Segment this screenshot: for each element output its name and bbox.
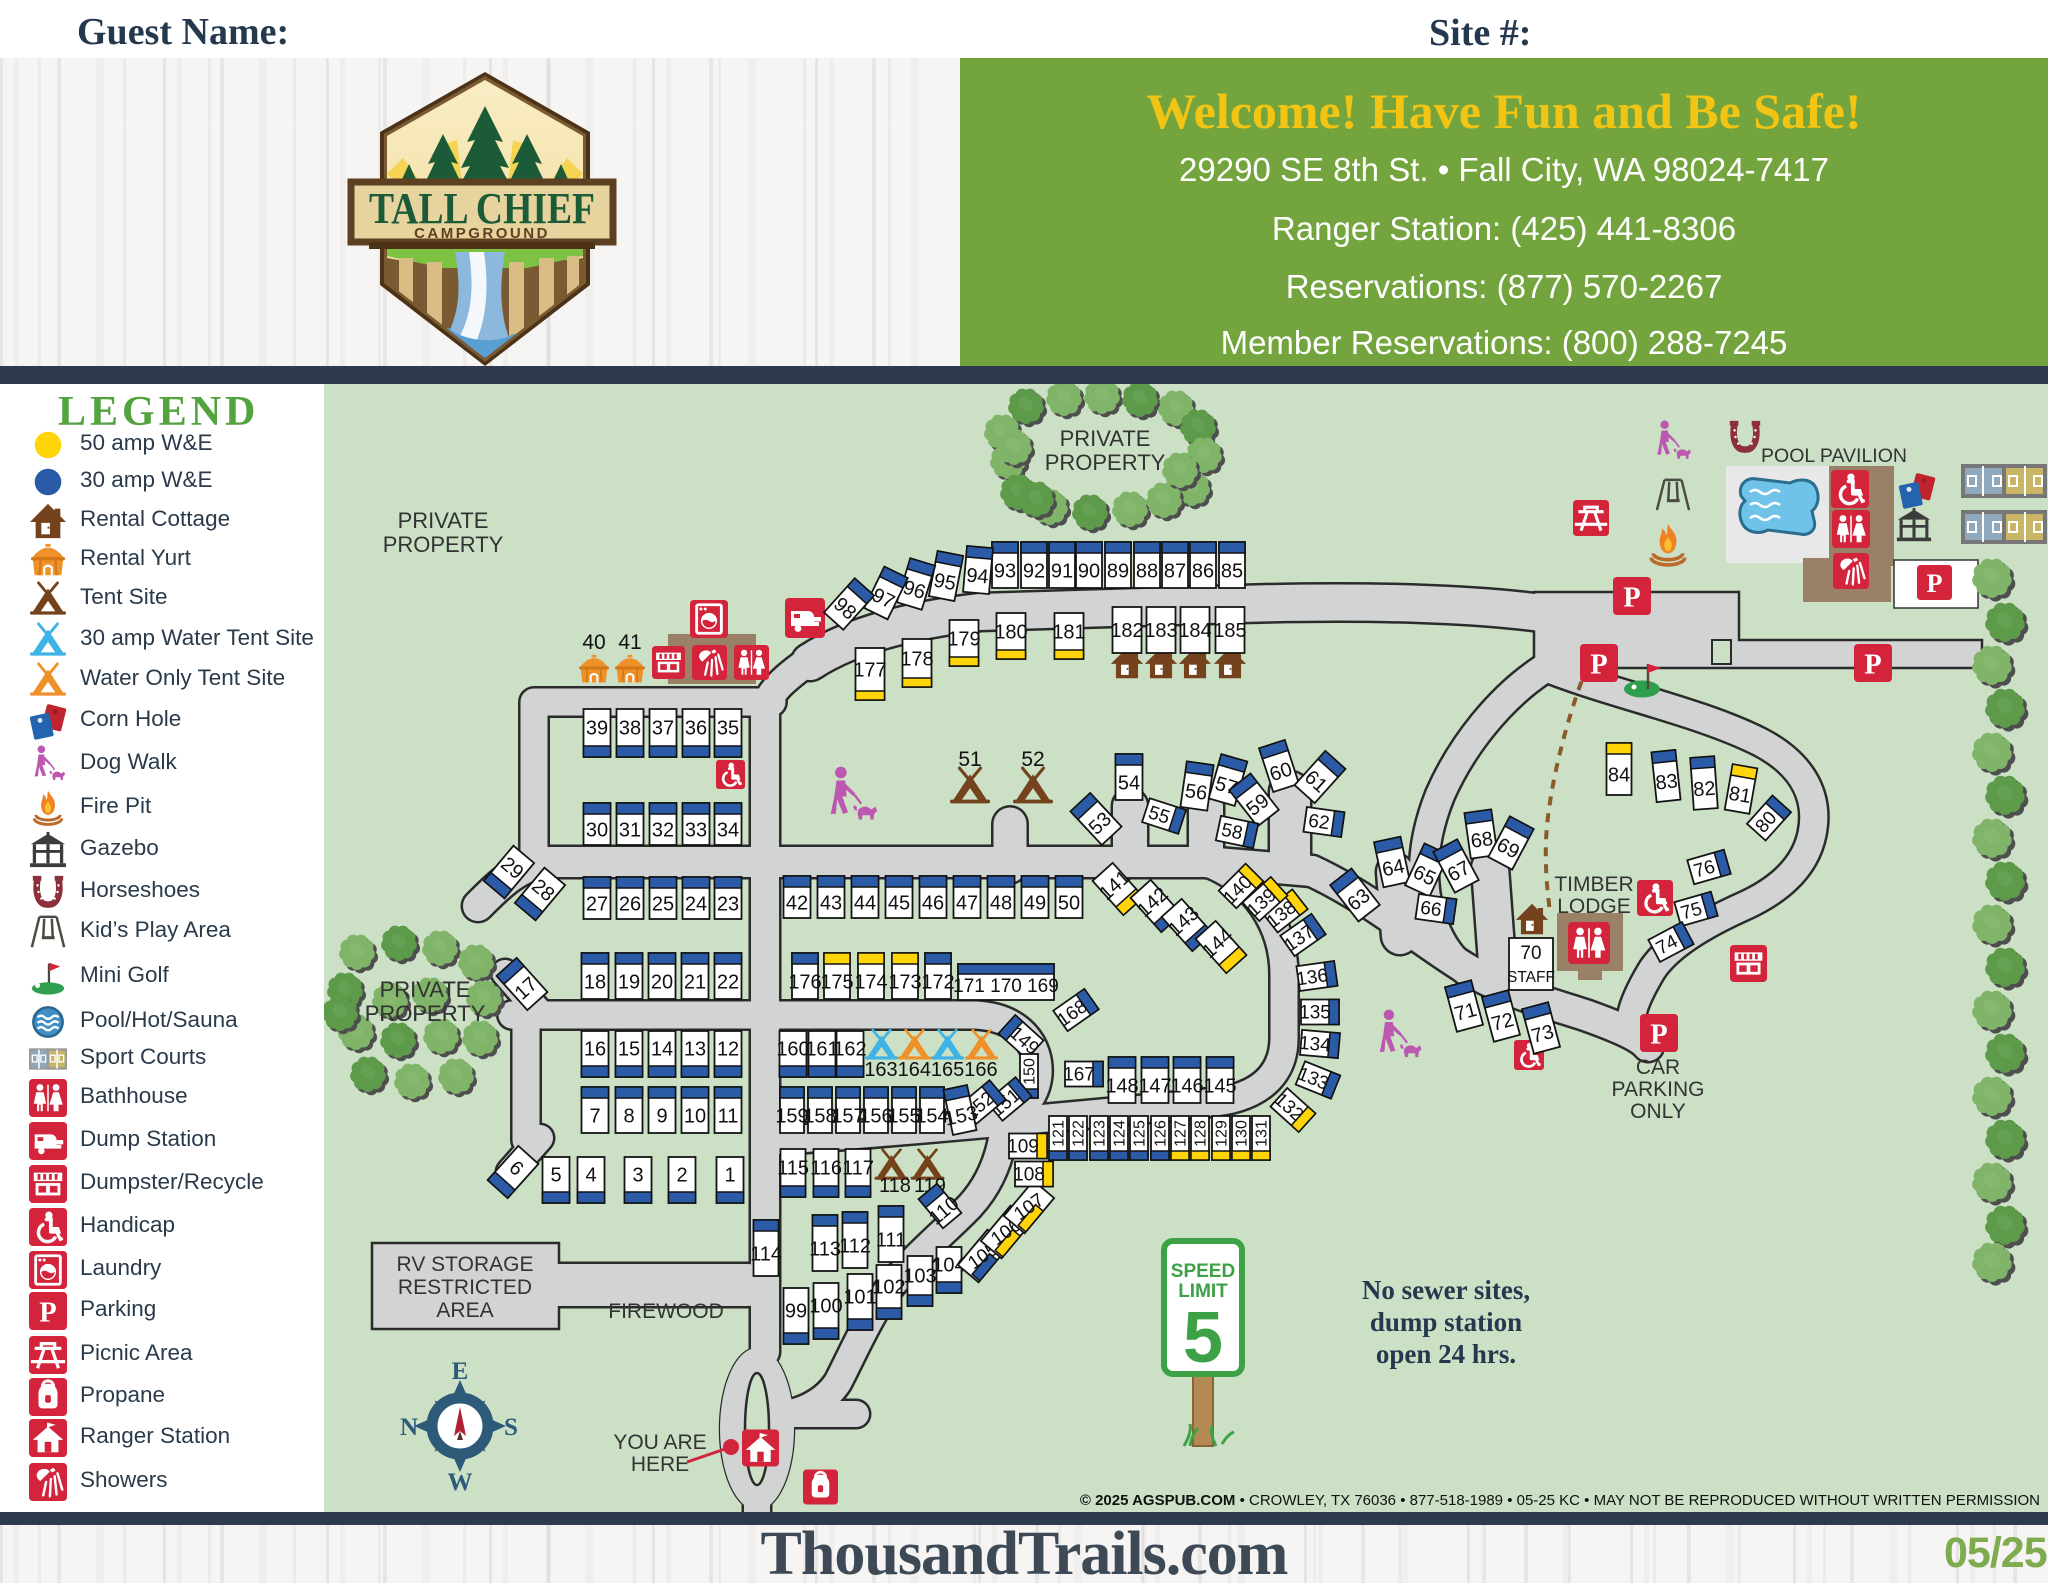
svg-text:171 170 169: 171 170 169 — [953, 976, 1059, 997]
svg-text:127: 127 — [1173, 1120, 1190, 1147]
svg-text:48: 48 — [990, 893, 1012, 915]
svg-text:163: 163 — [864, 1059, 897, 1081]
svg-text:129: 129 — [1214, 1120, 1231, 1147]
svg-text:118: 118 — [879, 1175, 911, 1197]
svg-text:175: 175 — [820, 972, 853, 994]
svg-text:49: 49 — [1024, 893, 1046, 915]
svg-text:© 2025 AGSPUB.COM • CROWLEY, T: © 2025 AGSPUB.COM • CROWLEY, TX 76036 • … — [1080, 1492, 2040, 1509]
svg-text:165: 165 — [931, 1059, 964, 1081]
svg-text:148: 148 — [1105, 1076, 1138, 1098]
svg-text:56: 56 — [1184, 780, 1209, 805]
svg-text:16: 16 — [584, 1039, 606, 1061]
svg-text:38: 38 — [619, 718, 641, 740]
svg-text:174: 174 — [854, 972, 887, 994]
svg-text:122: 122 — [1071, 1120, 1088, 1147]
svg-text:109: 109 — [1007, 1137, 1039, 1158]
svg-text:134: 134 — [1298, 1033, 1332, 1057]
svg-text:19: 19 — [618, 972, 640, 994]
svg-text:HERE: HERE — [631, 1453, 689, 1476]
svg-text:87: 87 — [1164, 561, 1186, 583]
svg-text:30: 30 — [586, 820, 608, 842]
svg-text:18: 18 — [584, 972, 606, 994]
svg-text:117: 117 — [842, 1158, 874, 1180]
svg-text:90: 90 — [1078, 561, 1100, 583]
svg-text:15: 15 — [618, 1039, 640, 1061]
svg-text:99: 99 — [785, 1301, 807, 1323]
svg-text:41: 41 — [618, 631, 641, 654]
svg-text:N: N — [400, 1414, 418, 1441]
svg-text:84: 84 — [1608, 765, 1630, 787]
svg-text:39: 39 — [586, 718, 608, 740]
svg-text:TIMBER: TIMBER — [1554, 873, 1633, 896]
svg-text:177: 177 — [853, 660, 886, 682]
svg-text:35: 35 — [717, 718, 739, 740]
svg-text:181: 181 — [1052, 622, 1085, 644]
svg-text:22: 22 — [717, 972, 739, 994]
svg-text:FIREWOOD: FIREWOOD — [608, 1300, 724, 1323]
svg-text:116: 116 — [810, 1158, 842, 1180]
svg-text:STAFF: STAFF — [1507, 969, 1555, 986]
svg-text:POOL PAVILION: POOL PAVILION — [1761, 445, 1907, 467]
svg-text:114: 114 — [750, 1244, 782, 1266]
svg-text:14: 14 — [651, 1039, 673, 1061]
svg-text:ONLY: ONLY — [1630, 1100, 1686, 1123]
svg-text:68: 68 — [1469, 828, 1494, 853]
svg-text:130: 130 — [1234, 1120, 1251, 1147]
svg-text:5: 5 — [1183, 1298, 1223, 1378]
svg-text:180: 180 — [994, 622, 1027, 644]
svg-text:AREA: AREA — [436, 1299, 493, 1322]
svg-text:111: 111 — [876, 1230, 906, 1252]
svg-text:178: 178 — [900, 649, 933, 671]
svg-text:25: 25 — [652, 894, 674, 916]
svg-text:21: 21 — [684, 972, 706, 994]
svg-text:10: 10 — [684, 1106, 706, 1128]
svg-text:95: 95 — [932, 569, 958, 595]
svg-text:113: 113 — [809, 1239, 841, 1261]
svg-text:85: 85 — [1221, 561, 1243, 583]
svg-text:24: 24 — [685, 894, 707, 916]
svg-text:CAMPGROUND: CAMPGROUND — [414, 225, 550, 242]
svg-text:52: 52 — [1021, 748, 1044, 771]
svg-text:145: 145 — [1203, 1076, 1236, 1098]
svg-text:2: 2 — [676, 1165, 687, 1187]
svg-text:83: 83 — [1654, 770, 1678, 794]
svg-text:89: 89 — [1107, 561, 1129, 583]
svg-text:RV STORAGE: RV STORAGE — [397, 1253, 534, 1276]
svg-text:147: 147 — [1138, 1076, 1171, 1098]
svg-text:172: 172 — [921, 972, 954, 994]
svg-text:81: 81 — [1727, 783, 1753, 809]
svg-text:31: 31 — [619, 820, 641, 842]
svg-text:88: 88 — [1136, 561, 1158, 583]
svg-text:36: 36 — [685, 718, 707, 740]
svg-text:131: 131 — [1254, 1120, 1271, 1147]
svg-text:66: 66 — [1419, 898, 1443, 922]
svg-text:115: 115 — [777, 1158, 809, 1180]
svg-text:166: 166 — [964, 1059, 997, 1081]
svg-text:125: 125 — [1132, 1120, 1149, 1147]
svg-text:23: 23 — [717, 894, 739, 916]
svg-text:PROPERTY: PROPERTY — [383, 532, 504, 557]
svg-text:51: 51 — [958, 748, 981, 771]
svg-text:E: E — [452, 1358, 469, 1385]
svg-text:47: 47 — [956, 893, 978, 915]
svg-text:124: 124 — [1112, 1120, 1129, 1147]
svg-text:93: 93 — [994, 561, 1016, 583]
svg-text:123: 123 — [1092, 1120, 1109, 1147]
svg-text:3: 3 — [632, 1165, 643, 1187]
svg-text:126: 126 — [1153, 1120, 1170, 1147]
svg-text:91: 91 — [1051, 561, 1073, 583]
svg-text:1: 1 — [724, 1165, 735, 1187]
svg-text:185: 185 — [1213, 620, 1246, 642]
svg-text:12: 12 — [717, 1039, 739, 1061]
svg-text:CAR: CAR — [1636, 1056, 1680, 1079]
svg-text:27: 27 — [586, 894, 608, 916]
svg-text:64: 64 — [1380, 855, 1406, 881]
svg-text:183: 183 — [1144, 620, 1177, 642]
svg-text:5: 5 — [550, 1165, 561, 1187]
svg-text:94: 94 — [965, 565, 989, 589]
svg-text:112: 112 — [839, 1236, 871, 1258]
svg-text:20: 20 — [651, 972, 673, 994]
svg-text:LODGE: LODGE — [1557, 895, 1631, 918]
svg-text:179: 179 — [947, 629, 980, 651]
svg-text:8: 8 — [623, 1106, 634, 1128]
svg-text:4: 4 — [585, 1165, 596, 1187]
svg-text:PARKING: PARKING — [1612, 1078, 1705, 1101]
svg-text:SPEED: SPEED — [1171, 1261, 1235, 1282]
svg-text:176: 176 — [788, 972, 821, 994]
svg-text:150: 150 — [1022, 1058, 1039, 1085]
svg-text:164: 164 — [898, 1059, 931, 1081]
svg-text:121: 121 — [1051, 1120, 1068, 1147]
svg-text:open 24 hrs.: open 24 hrs. — [1376, 1339, 1516, 1369]
svg-text:54: 54 — [1118, 773, 1140, 795]
svg-text:82: 82 — [1693, 778, 1717, 801]
svg-text:128: 128 — [1193, 1120, 1210, 1147]
svg-text:50: 50 — [1058, 893, 1080, 915]
svg-text:44: 44 — [854, 893, 876, 915]
svg-text:136: 136 — [1295, 965, 1329, 990]
svg-text:32: 32 — [652, 820, 674, 842]
svg-text:182: 182 — [1110, 620, 1143, 642]
svg-text:PRIVATE: PRIVATE — [380, 977, 471, 1002]
svg-text:7: 7 — [589, 1106, 600, 1128]
svg-text:33: 33 — [685, 820, 707, 842]
svg-text:11: 11 — [718, 1106, 739, 1128]
svg-text:108: 108 — [1013, 1165, 1045, 1186]
svg-text:40: 40 — [582, 631, 605, 654]
svg-text:No sewer sites,: No sewer sites, — [1362, 1275, 1530, 1305]
svg-text:PRIVATE: PRIVATE — [398, 508, 489, 533]
svg-text:162: 162 — [833, 1039, 866, 1061]
svg-text:26: 26 — [619, 894, 641, 916]
svg-text:102: 102 — [872, 1277, 905, 1299]
svg-text:146: 146 — [1170, 1076, 1203, 1098]
svg-text:S: S — [504, 1414, 518, 1441]
svg-text:RESTRICTED: RESTRICTED — [398, 1276, 532, 1299]
svg-text:46: 46 — [922, 893, 944, 915]
svg-text:PROPERTY: PROPERTY — [1045, 450, 1166, 475]
svg-text:92: 92 — [1023, 561, 1045, 583]
svg-text:135: 135 — [1299, 1003, 1331, 1024]
svg-text:13: 13 — [684, 1039, 706, 1061]
svg-text:173: 173 — [888, 972, 921, 994]
svg-text:62: 62 — [1307, 811, 1331, 835]
svg-text:184: 184 — [1178, 620, 1211, 642]
svg-text:43: 43 — [820, 893, 842, 915]
svg-text:PRIVATE: PRIVATE — [1060, 426, 1151, 451]
svg-text:PROPERTY: PROPERTY — [365, 1001, 486, 1026]
svg-text:70: 70 — [1520, 943, 1541, 964]
svg-text:dump station: dump station — [1370, 1307, 1522, 1337]
svg-text:45: 45 — [888, 893, 910, 915]
svg-text:42: 42 — [786, 893, 808, 915]
svg-text:37: 37 — [652, 718, 674, 740]
svg-text:W: W — [448, 1469, 473, 1496]
svg-text:86: 86 — [1192, 561, 1214, 583]
svg-text:YOU ARE: YOU ARE — [613, 1431, 706, 1454]
svg-text:9: 9 — [656, 1106, 667, 1128]
svg-text:58: 58 — [1219, 820, 1244, 845]
svg-text:34: 34 — [717, 820, 739, 842]
svg-text:167: 167 — [1063, 1065, 1095, 1086]
svg-text:100: 100 — [809, 1296, 842, 1318]
